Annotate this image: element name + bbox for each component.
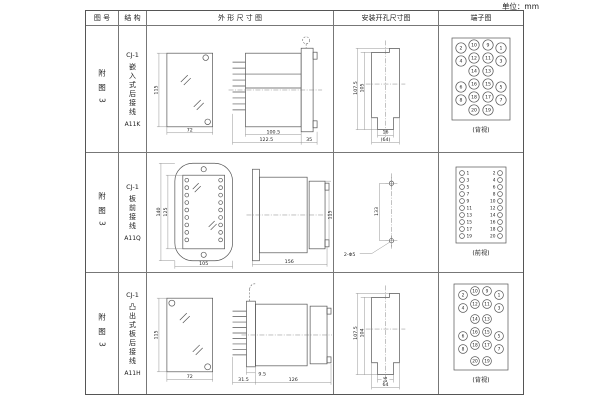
terminal-number: 9 bbox=[487, 42, 490, 48]
cell-structure-a11q: CJ-1 板前接线 A11Q bbox=[119, 153, 147, 273]
terminal-number: 16 bbox=[472, 330, 478, 336]
dim-front-width: 105 bbox=[199, 261, 208, 267]
front-view: 115 72 bbox=[153, 53, 212, 135]
terminal-number: 11 bbox=[484, 302, 490, 308]
mounting-drawing-a11h: 107.5 104 16 64 bbox=[334, 273, 438, 394]
view-label: (前视) bbox=[472, 249, 489, 257]
outline-drawing-a11q: 140 125 105 156 115 bbox=[147, 153, 333, 273]
cutout-view: 107.5 104 16 64 bbox=[353, 285, 406, 389]
terminal-grid: 12 34 56 78 910 1112 1314 1516 1718 1920 bbox=[456, 167, 506, 243]
cell-mounting-a11q: 133 2-Φ5 bbox=[334, 153, 439, 273]
side-view: 9.5 31.5 126 bbox=[233, 284, 332, 385]
terminal-number: 17 bbox=[467, 226, 473, 232]
view-label: (背视) bbox=[472, 126, 489, 134]
terminal-number: 13 bbox=[484, 317, 490, 323]
outline-drawing-a11h: 115 72 9.5 31.5 126 bbox=[147, 273, 333, 394]
front-view: 115 72 bbox=[153, 298, 212, 382]
holes-view: 133 2-Φ5 bbox=[344, 173, 397, 258]
terminal-grid: 2 10 9 1 4 12 11 3 14 13 6 16 15 5 8 18 … bbox=[452, 38, 510, 120]
terminal-diagram-a11k: 2 10 9 1 4 12 11 3 14 13 6 16 15 5 8 18 … bbox=[439, 26, 523, 153]
terminal-number: 9 bbox=[467, 198, 470, 204]
fig-no-label: 附图3 bbox=[97, 69, 108, 110]
terminal-number: 7 bbox=[467, 191, 470, 197]
header-terminal: 端子图 bbox=[439, 11, 523, 26]
terminal-number: 3 bbox=[500, 58, 503, 64]
dim-front-width: 72 bbox=[187, 127, 193, 133]
terminal-number: 11 bbox=[467, 205, 473, 211]
terminal-number: 15 bbox=[485, 81, 491, 87]
type-code-label: A11K bbox=[125, 121, 141, 128]
terminal-number: 12 bbox=[490, 205, 496, 211]
terminal-number: 19 bbox=[485, 107, 491, 113]
dim-side-height: 115 bbox=[328, 210, 333, 219]
terminal-number: 7 bbox=[500, 97, 503, 103]
dim-cutout-outer-h: 107.5 bbox=[353, 81, 359, 95]
terminal-number: 1 bbox=[467, 170, 470, 176]
terminal-number: 15 bbox=[467, 219, 473, 225]
spec-table: 图 号 结 构 外 形 尺 寸 图 安装开孔尺寸图 端子图 附图3 CJ-1 嵌… bbox=[85, 10, 524, 395]
hole-spec-label: 2-Φ5 bbox=[344, 252, 356, 258]
dim-side-length: 126 bbox=[289, 377, 298, 383]
terminal-number: 17 bbox=[484, 343, 490, 349]
dim-side-length: 156 bbox=[285, 259, 294, 265]
terminal-number: 19 bbox=[467, 233, 473, 239]
terminal-number: 16 bbox=[471, 81, 477, 87]
fig-no-label: 附图3 bbox=[97, 313, 108, 354]
terminal-number: 4 bbox=[493, 177, 496, 183]
terminal-number: 13 bbox=[467, 212, 473, 218]
type-code-label: A11H bbox=[124, 370, 140, 377]
dim-cutout-width: (64) bbox=[381, 137, 391, 143]
type-code-label: A11Q bbox=[124, 235, 140, 242]
terminal-number: 18 bbox=[490, 226, 496, 232]
cell-structure-a11h: CJ-1 凸出式板后接线 A11H bbox=[119, 273, 147, 394]
terminal-number: 16 bbox=[490, 219, 496, 225]
terminal-number: 2 bbox=[460, 45, 463, 51]
terminal-number: 18 bbox=[472, 343, 478, 349]
mounting-drawing-a11q: 133 2-Φ5 bbox=[334, 153, 438, 273]
header-mounting: 安装开孔尺寸图 bbox=[334, 11, 439, 26]
cell-mounting-a11k: 107.5 105 16 (64) bbox=[334, 26, 439, 153]
terminal-number: 15 bbox=[484, 330, 490, 336]
terminal-diagram-a11q: 12 34 56 78 910 1112 1314 1516 1718 1920… bbox=[439, 153, 523, 273]
terminal-number: 1 bbox=[498, 293, 501, 299]
cell-outline-a11q: 140 125 105 156 115 bbox=[147, 153, 334, 273]
dim-body-depth: 100.5 bbox=[266, 129, 280, 135]
terminal-number: 12 bbox=[471, 55, 477, 61]
dim-slot-width: 16 bbox=[383, 377, 389, 383]
dim-cutout-inner-h: 105 bbox=[360, 83, 366, 92]
terminal-number: 3 bbox=[498, 306, 501, 312]
terminal-number: 17 bbox=[485, 94, 491, 100]
side-view: 100.5 122.5 35 bbox=[229, 36, 322, 144]
cell-terminal-a11q: 12 34 56 78 910 1112 1314 1516 1718 1920… bbox=[439, 153, 523, 273]
terminal-number: 8 bbox=[493, 191, 496, 197]
cell-outline-a11h: 115 72 9.5 31.5 126 bbox=[147, 273, 334, 394]
dim-plate-thickness: 9.5 bbox=[258, 371, 266, 377]
dim-front-inner-h: 125 bbox=[163, 207, 169, 216]
cell-terminal-a11k: 2 10 9 1 4 12 11 3 14 13 6 16 15 5 8 18 … bbox=[439, 26, 523, 153]
dim-hole-spacing: 133 bbox=[374, 206, 380, 215]
terminal-number: 7 bbox=[498, 347, 501, 353]
terminal-number: 9 bbox=[486, 289, 489, 295]
terminal-number: 3 bbox=[467, 177, 470, 183]
terminal-number: 4 bbox=[460, 58, 463, 64]
terminal-diagram-a11h: 2 10 9 1 4 12 11 3 14 13 6 16 15 5 8 18 … bbox=[439, 273, 523, 394]
dim-cutout-outer-h: 107.5 bbox=[353, 326, 359, 340]
terminal-number: 2 bbox=[462, 293, 465, 299]
terminal-number: 4 bbox=[462, 306, 465, 312]
dim-front-outer-h: 140 bbox=[156, 207, 162, 216]
cell-fig-no-a11h: 附图3 bbox=[86, 273, 119, 394]
terminal-number: 8 bbox=[460, 97, 463, 103]
terminal-number: 6 bbox=[460, 84, 463, 90]
terminal-number: 1 bbox=[500, 45, 503, 51]
header-fig-no: 图 号 bbox=[86, 11, 119, 26]
terminal-number: 2 bbox=[493, 170, 496, 176]
terminal-number: 10 bbox=[490, 198, 496, 204]
dim-cutout-width: 64 bbox=[382, 382, 388, 388]
view-label: (背视) bbox=[472, 376, 489, 384]
mounting-drawing-a11k: 107.5 105 16 (64) bbox=[334, 26, 438, 153]
terminal-number: 13 bbox=[485, 68, 491, 74]
terminal-number: 14 bbox=[471, 68, 477, 74]
model-label: CJ-1 bbox=[126, 291, 139, 299]
dim-cutout-inner-h: 104 bbox=[360, 328, 366, 337]
fig-no-label: 附图3 bbox=[97, 192, 108, 233]
header-structure: 结 构 bbox=[119, 11, 147, 26]
model-label: CJ-1 bbox=[126, 51, 139, 59]
outline-drawing-a11k: 115 72 100.5 122.5 35 bbox=[147, 26, 333, 153]
model-label: CJ-1 bbox=[126, 183, 139, 191]
terminal-number: 6 bbox=[493, 184, 496, 190]
terminal-number: 10 bbox=[471, 42, 477, 48]
terminal-number: 11 bbox=[485, 55, 491, 61]
side-view: 156 115 bbox=[246, 169, 333, 266]
dim-front-height: 115 bbox=[153, 85, 159, 94]
structure-label: 板前接线 bbox=[128, 195, 138, 231]
dim-slot-width: 16 bbox=[382, 129, 388, 135]
terminal-grid: 2 10 9 1 4 12 11 3 14 13 6 16 15 5 8 18 … bbox=[454, 284, 508, 370]
dim-front-length: 31.5 bbox=[238, 377, 249, 383]
cell-terminal-a11h: 2 10 9 1 4 12 11 3 14 13 6 16 15 5 8 18 … bbox=[439, 273, 523, 394]
terminal-number: 14 bbox=[490, 212, 496, 218]
cutout-view: 107.5 105 16 (64) bbox=[353, 40, 406, 144]
terminal-number: 14 bbox=[472, 317, 478, 323]
dim-flange-depth: 35 bbox=[306, 137, 312, 143]
dim-front-height: 115 bbox=[153, 330, 159, 339]
structure-label: 嵌入式后接线 bbox=[128, 63, 138, 117]
terminal-number: 18 bbox=[471, 94, 477, 100]
terminal-number: 5 bbox=[500, 84, 503, 90]
dim-front-width: 72 bbox=[187, 374, 193, 380]
terminal-number: 19 bbox=[484, 359, 490, 365]
terminal-number: 10 bbox=[472, 289, 478, 295]
terminal-number: 6 bbox=[462, 334, 465, 340]
terminal-number: 20 bbox=[472, 359, 478, 365]
cell-outline-a11k: 115 72 100.5 122.5 35 bbox=[147, 26, 334, 153]
cell-mounting-a11h: 107.5 104 16 64 bbox=[334, 273, 439, 394]
structure-label: 凸出式板后接线 bbox=[127, 303, 137, 366]
dim-total-depth: 122.5 bbox=[260, 137, 274, 143]
terminal-number: 8 bbox=[462, 347, 465, 353]
terminal-number: 5 bbox=[467, 184, 470, 190]
cell-fig-no-a11k: 附图3 bbox=[86, 26, 119, 153]
terminal-number: 20 bbox=[490, 233, 496, 239]
cell-structure-a11k: CJ-1 嵌入式后接线 A11K bbox=[119, 26, 147, 153]
header-outline: 外 形 尺 寸 图 bbox=[147, 11, 334, 26]
terminal-number: 5 bbox=[498, 334, 501, 340]
terminal-number: 20 bbox=[471, 107, 477, 113]
terminal-number: 12 bbox=[472, 302, 478, 308]
cell-fig-no-a11q: 附图3 bbox=[86, 153, 119, 273]
front-view: 140 125 105 bbox=[156, 163, 233, 268]
